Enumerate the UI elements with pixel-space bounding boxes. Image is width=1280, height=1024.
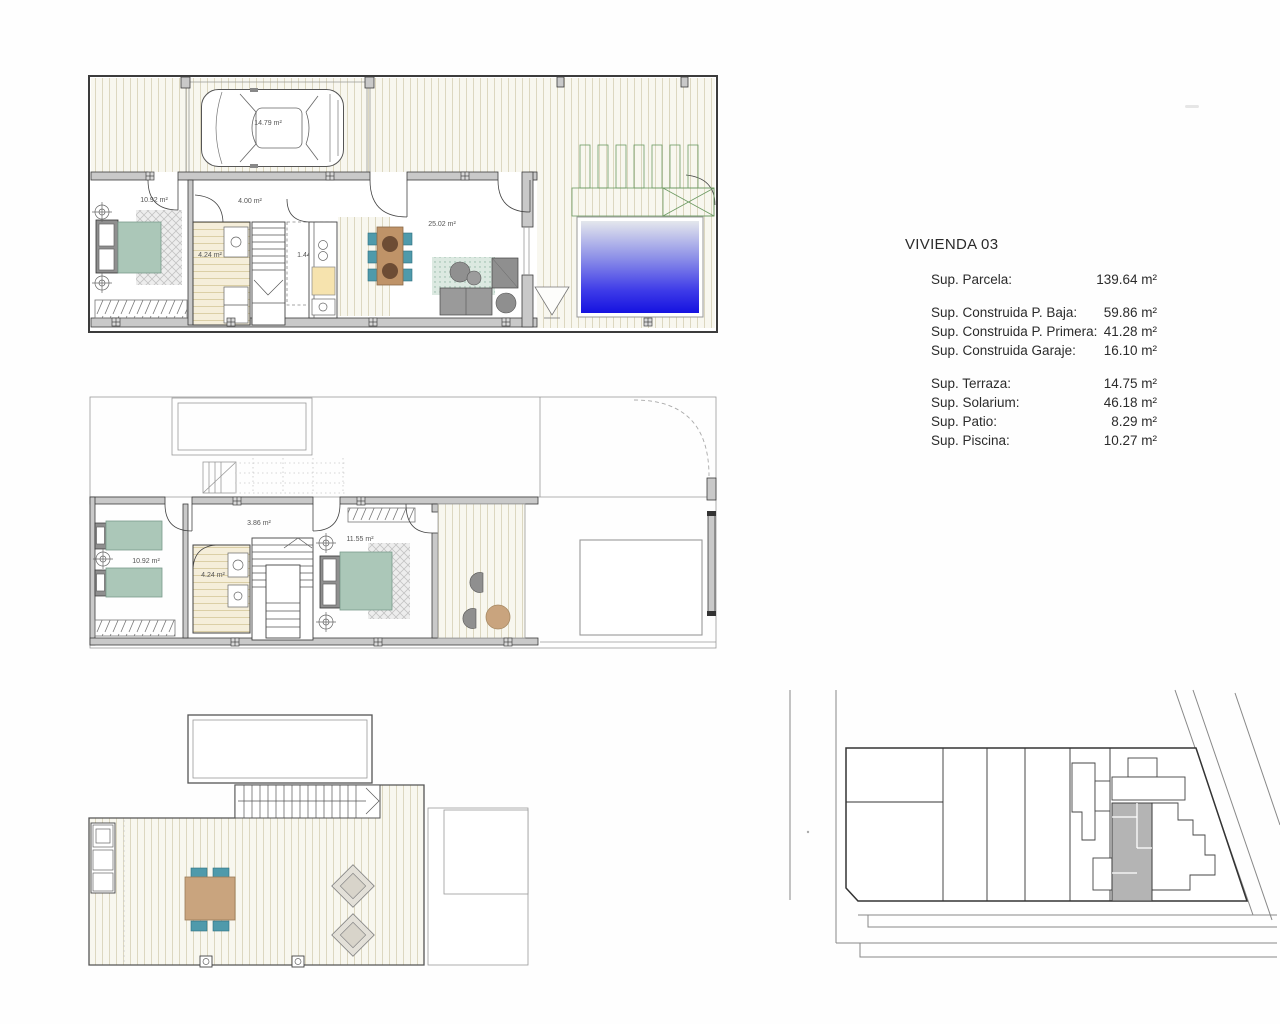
plate-icon [382,263,398,279]
bedroom-area-label: 10.92 m² [140,197,168,204]
bedroom-2: 10.92 m² [93,504,192,636]
bedroom2-area-label: 10.92 m² [132,558,160,565]
single-bed-icon [95,568,162,597]
stair-enclosure [188,715,372,783]
area-label: Sup. Construida P. Baja: [931,303,1077,322]
plate-icon [382,236,398,252]
lower-level-outline [90,397,716,497]
ceiling-light-icon [316,612,336,632]
bedroom-1: 11.55 m² [313,504,432,632]
area-row-construida-baja: Sup. Construida P. Baja: 59.86 m² [931,303,1157,322]
area-value: 10.27 m² [1104,431,1157,450]
bathroom-area-label: 4.24 m² [198,252,222,259]
area-row-construida-primera: Sup. Construida P. Primera: 41.28 m² [931,322,1157,341]
pouf-icon [496,293,516,313]
car-icon [202,88,344,168]
info-panel: VIVIENDA 03 Sup. Parcela: 139.64 m² Sup.… [905,236,1165,450]
area-value: 8.29 m² [1111,412,1157,431]
area-value: 41.28 m² [1104,322,1157,341]
door-swing [313,504,340,531]
scan-artifact [1185,105,1199,108]
pergola-dashed-grid [235,458,346,493]
armchair-icon [467,271,481,285]
outdoor-kitchenette [91,823,115,893]
terrace-table-icon [486,605,510,629]
area-value: 46.18 m² [1104,393,1157,412]
swimming-pool [577,217,703,317]
entry-door-swing-dashed [634,400,709,476]
area-label: Sup. Construida P. Primera: [931,322,1097,341]
area-label: Sup. Piscina: [931,431,1010,450]
bathroom: 4.24 m² [193,545,250,633]
patio-pool-outline [580,511,716,635]
area-label: Sup. Construida Garaje: [931,341,1076,360]
table-icon [185,877,235,920]
area-value: 59.86 m² [1104,303,1157,322]
kitchen [309,222,337,318]
garage-area-label: 14.79 m² [254,120,282,127]
area-table: Sup. Parcela: 139.64 m² Sup. Construida … [931,270,1157,450]
area-row-construida-garaje: Sup. Construida Garaje: 16.10 m² [931,341,1157,360]
solarium-plan [88,700,538,990]
wall-stub [707,478,716,500]
sofa-icon [440,288,492,315]
living-area-label: 25.02 m² [428,221,456,228]
survey-dot [807,831,809,833]
hall-area-label: 4.00 m² [238,198,262,205]
single-bed-icon [95,521,162,550]
double-bed-icon [320,552,392,610]
lower-terrace-outline [428,808,528,965]
area-label: Sup. Solarium: [931,393,1020,412]
bedroom1-area-label: 11.55 m² [346,536,374,543]
area-row-terraza: Sup. Terraza: 14.75 m² [931,374,1157,393]
highlighted-plot [1112,803,1152,901]
terrace [438,504,525,638]
first-floor-plan: 10.92 m² 3.86 m² 4.24 m² [88,393,718,655]
ceiling-light-icon [93,549,113,569]
staircase-icon [252,538,313,640]
front-terrace-deck [91,78,715,172]
double-bed-icon [96,220,161,273]
architectural-sheet: 14.79 m² 10. [0,0,1280,1024]
ceiling-light-icon [316,533,336,553]
area-label: Sup. Terraza: [931,374,1011,393]
ground-floor-plan: 14.79 m² 10. [88,75,718,333]
site-plan [780,685,1280,985]
wardrobe-icon [95,300,187,318]
area-label: Sup. Parcela: [931,270,1012,289]
area-value: 14.75 m² [1104,374,1157,393]
dwelling-title: VIVIENDA 03 [905,236,1165,253]
area-value: 139.64 m² [1096,270,1157,289]
wardrobe-icon [95,620,175,636]
area-row-solarium: Sup. Solarium: 46.18 m² [931,393,1157,412]
landing-area-label: 3.86 m² [247,520,271,527]
area-row-patio: Sup. Patio: 8.29 m² [931,412,1157,431]
area-row-parcela: Sup. Parcela: 139.64 m² [931,270,1157,289]
wardrobe-icon [348,508,415,522]
staircase-icon [235,785,380,818]
oven-icon [312,267,335,295]
area-label: Sup. Patio: [931,412,997,431]
staircase-icon [252,222,285,325]
bathroom-area-label: 4.24 m² [201,572,225,579]
area-value: 16.10 m² [1104,341,1157,360]
area-row-piscina: Sup. Piscina: 10.27 m² [931,431,1157,450]
